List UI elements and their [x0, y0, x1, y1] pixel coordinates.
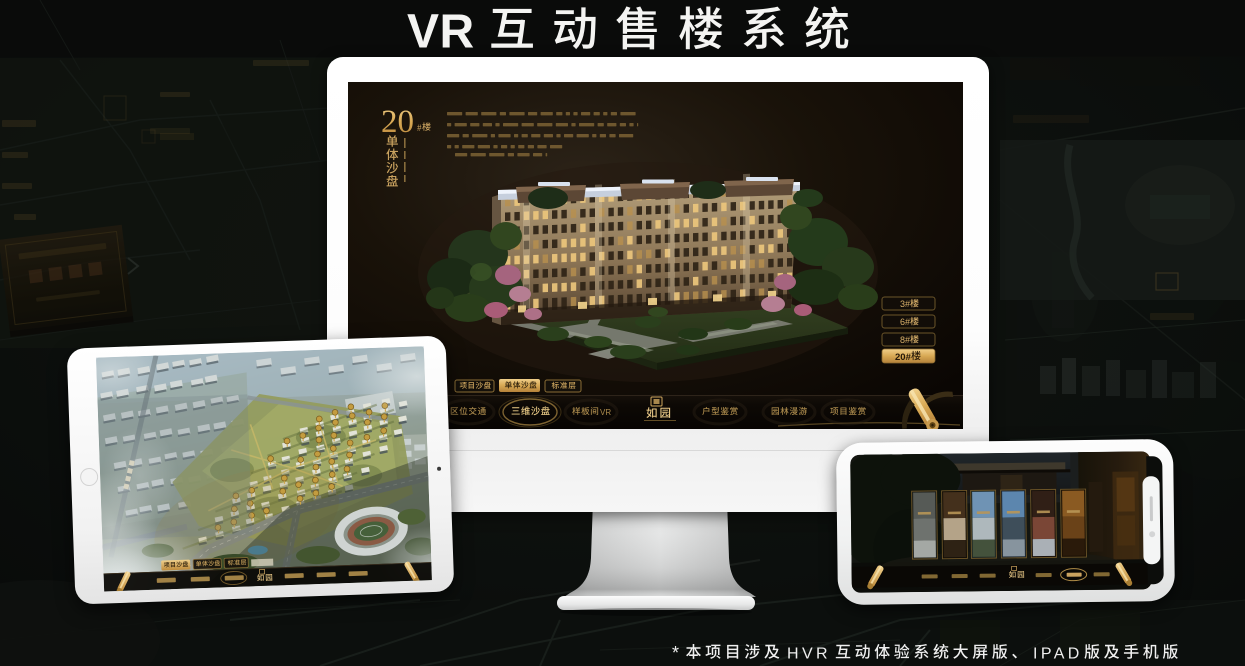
svg-text:20#: 20# — [895, 352, 912, 363]
svg-text:*: * — [672, 643, 679, 663]
svg-text:VR: VR — [407, 6, 475, 59]
svg-text:IPAD: IPAD — [1033, 646, 1083, 663]
svg-text:8#: 8# — [900, 335, 910, 345]
svg-text:VR: VR — [600, 408, 611, 417]
svg-text:HVR: HVR — [787, 646, 831, 663]
svg-text:6#: 6# — [900, 317, 910, 327]
svg-text:3#: 3# — [900, 299, 910, 309]
svg-text:20: 20 — [381, 104, 414, 140]
svg-text:#: # — [417, 123, 422, 133]
